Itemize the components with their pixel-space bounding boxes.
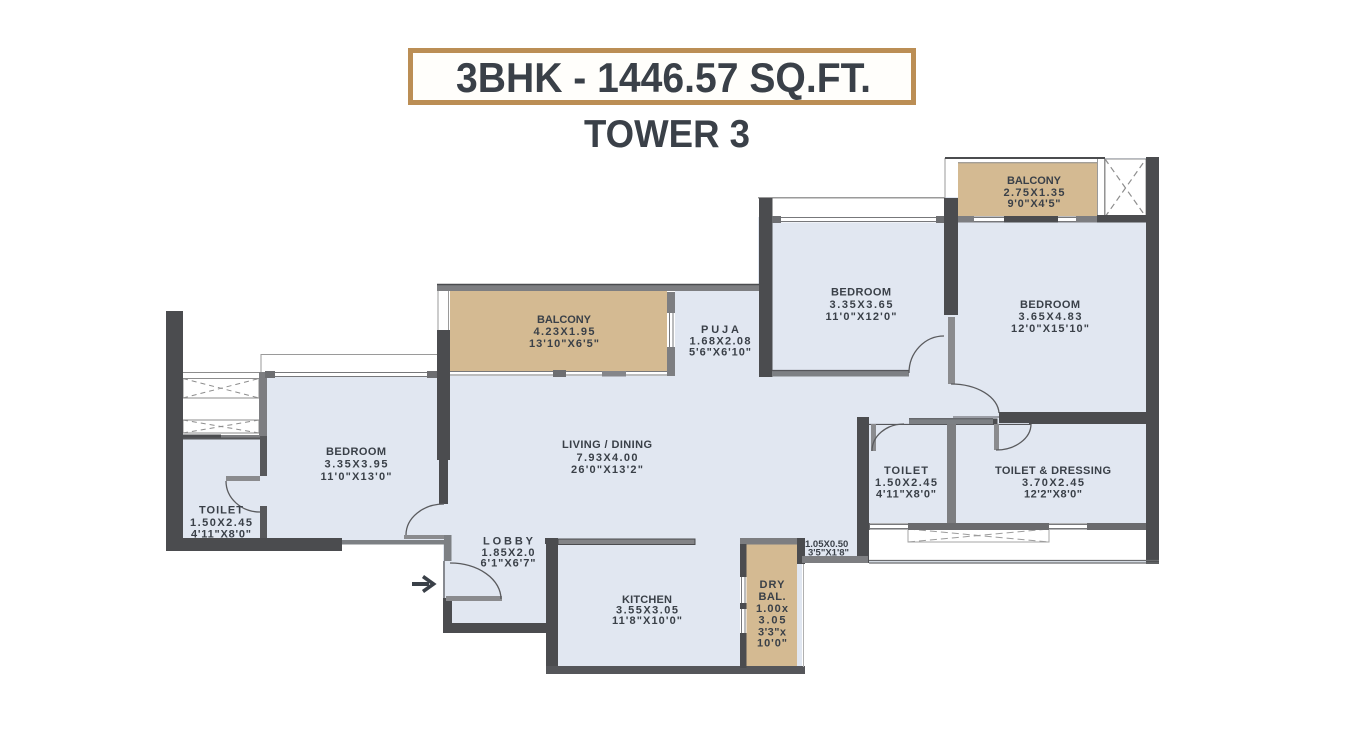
svg-text:BEDROOM: BEDROOM (326, 446, 386, 458)
svg-text:7.93X4.00: 7.93X4.00 (577, 452, 638, 464)
svg-text:4.23X1.95: 4.23X1.95 (534, 326, 595, 338)
svg-text:10'0": 10'0" (757, 638, 787, 650)
svg-text:4'11"X8'0": 4'11"X8'0" (876, 489, 936, 501)
svg-text:11'0"X13'0": 11'0"X13'0" (321, 471, 392, 483)
svg-text:1.00x: 1.00x (756, 603, 789, 615)
svg-text:TOILET & DRESSING: TOILET & DRESSING (995, 465, 1111, 477)
svg-text:3.70X2.45: 3.70X2.45 (1022, 477, 1084, 489)
svg-text:5'6"X6'10": 5'6"X6'10" (689, 347, 751, 359)
svg-text:12'2"X8'0": 12'2"X8'0" (1024, 489, 1082, 501)
svg-text:3.05: 3.05 (759, 615, 786, 627)
svg-text:6'1"X6'7": 6'1"X6'7" (481, 558, 536, 570)
svg-text:3.65X4.83: 3.65X4.83 (1019, 311, 1082, 323)
svg-text:BEDROOM: BEDROOM (1020, 299, 1080, 311)
svg-text:13'10"X6'5": 13'10"X6'5" (529, 338, 599, 350)
svg-text:BAL.: BAL. (759, 591, 786, 603)
svg-text:3'5"X1'8": 3'5"X1'8" (808, 548, 849, 559)
svg-text:TOWER 3: TOWER 3 (584, 113, 750, 156)
svg-text:1.50X2.45: 1.50X2.45 (875, 477, 937, 489)
svg-text:3.35X3.65: 3.35X3.65 (830, 299, 893, 311)
svg-text:3.35X3.95: 3.35X3.95 (325, 459, 388, 471)
svg-text:BALCONY: BALCONY (1007, 175, 1062, 187)
svg-text:BEDROOM: BEDROOM (831, 287, 891, 299)
svg-text:LIVING / DINING: LIVING / DINING (562, 439, 652, 451)
svg-text:BALCONY: BALCONY (537, 314, 592, 326)
svg-text:TOILET: TOILET (199, 505, 243, 517)
svg-text:3BHK - 1446.57 SQ.FT.: 3BHK - 1446.57 SQ.FT. (456, 54, 871, 101)
svg-text:4'11"X8'0": 4'11"X8'0" (191, 529, 251, 541)
svg-text:12'0"X15'10": 12'0"X15'10" (1011, 323, 1089, 335)
svg-text:1.50X2.45: 1.50X2.45 (190, 517, 252, 529)
svg-text:TOILET: TOILET (884, 465, 928, 477)
svg-text:DRY: DRY (760, 579, 786, 591)
svg-text:26'0"X13'2": 26'0"X13'2" (571, 464, 643, 476)
svg-text:11'8"X10'0": 11'8"X10'0" (612, 615, 682, 627)
svg-text:9'0"X4'5": 9'0"X4'5" (1008, 198, 1061, 210)
svg-text:11'0"X12'0": 11'0"X12'0" (826, 311, 897, 323)
